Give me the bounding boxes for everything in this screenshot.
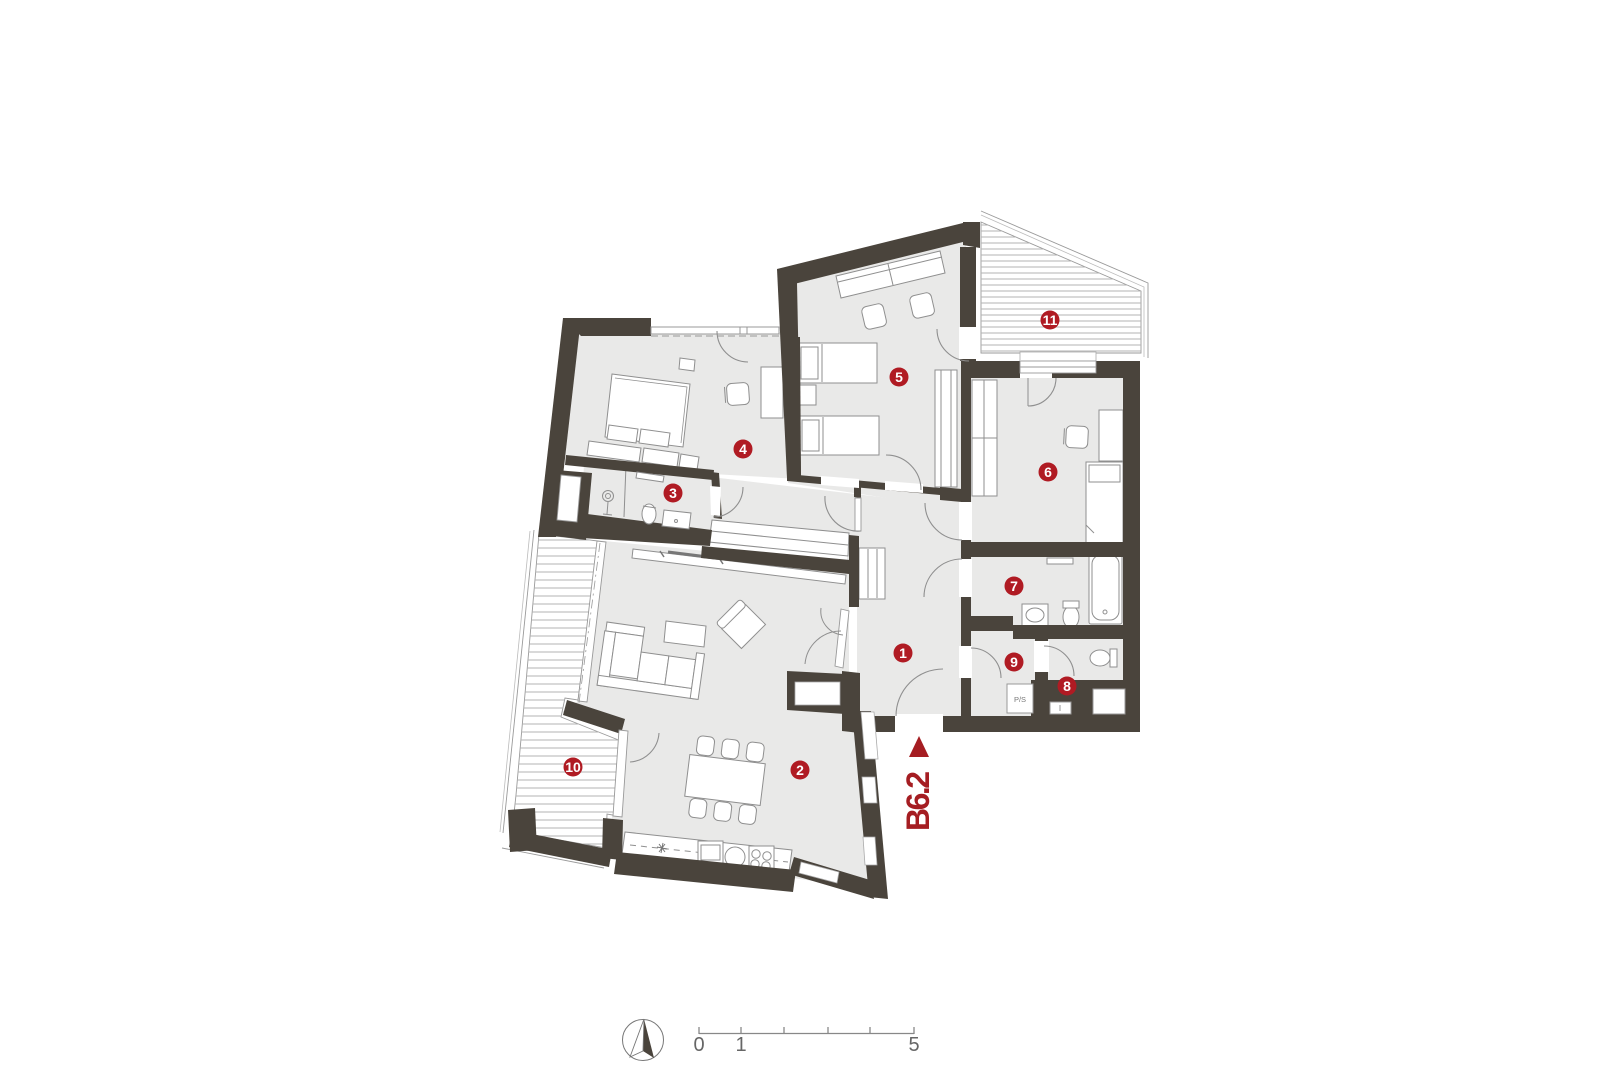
svg-text:6: 6	[1044, 464, 1052, 480]
svg-text:0: 0	[693, 1034, 704, 1056]
svg-text:1: 1	[899, 645, 907, 661]
svg-text:1: 1	[735, 1034, 746, 1056]
svg-text:4: 4	[739, 441, 747, 457]
svg-text:11: 11	[1043, 312, 1058, 328]
svg-text:P/S: P/S	[1014, 695, 1026, 704]
svg-text:5: 5	[895, 369, 903, 385]
svg-text:3: 3	[669, 485, 677, 501]
svg-text:10: 10	[565, 759, 581, 775]
svg-text:5: 5	[908, 1034, 919, 1056]
svg-text:2: 2	[796, 762, 804, 778]
svg-text:B6.2: B6.2	[900, 772, 936, 831]
svg-text:7: 7	[1010, 578, 1018, 594]
svg-text:9: 9	[1010, 654, 1018, 670]
svg-text:8: 8	[1063, 678, 1071, 694]
